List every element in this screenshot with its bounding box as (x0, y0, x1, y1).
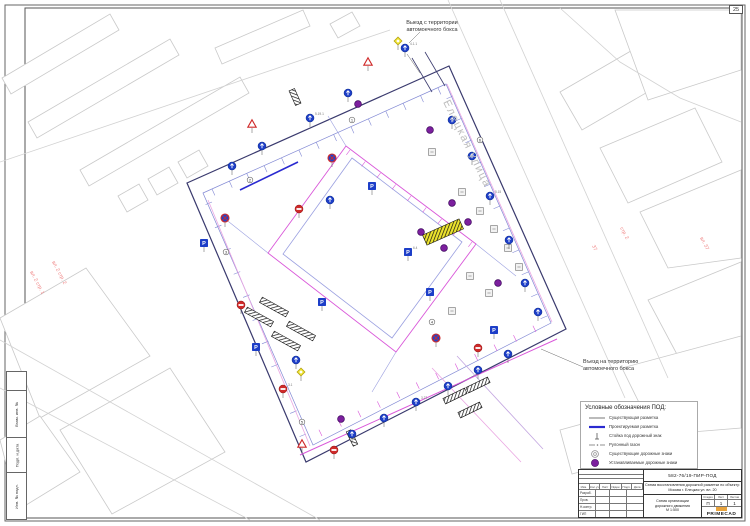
drawing-sheet: 4.1.15.19.12P165.15P6.4PP43.2753.1P3PPЕл… (0, 0, 750, 526)
svg-text:6.4: 6.4 (413, 246, 418, 250)
annotation-line: автомоечного бокса (583, 366, 673, 373)
title-block-role-row: Пров. (579, 497, 643, 504)
blank-cell (596, 497, 610, 503)
sign-cn: 2 (247, 177, 253, 183)
svg-text:P: P (320, 300, 324, 306)
blank-cell (627, 511, 643, 517)
blank-cell (596, 490, 610, 496)
dashdot-icon (585, 441, 609, 449)
legend-title: Условные обозначения ПОД: (585, 405, 693, 411)
role-label: Н.контр. (579, 504, 596, 510)
stamp-empty-cell (6, 371, 27, 392)
title-block-role-row: Н.контр. (579, 504, 643, 511)
stage-sheet-table: СтадияЛистЛистовП11 (702, 495, 741, 507)
doc-code: 582-76/19-ПИР-ПОД (644, 470, 741, 482)
legend-row: Стойка под дорожный знак (585, 431, 693, 440)
blank-cell (596, 504, 610, 510)
stamp-label: Взам. инв. № (14, 402, 19, 427)
legend-row: Существующая разметка (585, 413, 693, 422)
svg-text:P: P (254, 345, 258, 351)
post-icon (585, 432, 609, 440)
legend-label: Проектируемая разметка (609, 424, 658, 429)
circle-gray-icon (585, 450, 609, 458)
svg-text:5.15: 5.15 (495, 190, 501, 194)
blank-cell (610, 490, 627, 496)
title-block-col-header: Подп. (622, 484, 633, 489)
sign-pd (495, 280, 502, 287)
sign-cn: 6 (477, 137, 483, 143)
title-block-left-grid: Изм.Кол.учЛист№док.Подп.Дата Разраб.Пров… (579, 470, 644, 517)
svg-text:3.1: 3.1 (288, 383, 293, 387)
legend-label: Устанавливаемые дорожные знаки (609, 460, 677, 465)
svg-text:P: P (406, 250, 410, 256)
blank-cell (627, 504, 643, 510)
sign-cn: 3 (223, 249, 229, 255)
sign-pd (338, 416, 345, 423)
blank-cell (610, 504, 627, 510)
annotation-line: Выезд с территории (388, 20, 476, 27)
blank-cell (610, 511, 627, 517)
sign-pd (441, 245, 448, 252)
title-block-role-row: ГИП (579, 511, 643, 517)
annotation-entry-right: Въезд на территорию автомоечного бокса (583, 359, 673, 373)
sign-pd (465, 219, 472, 226)
stage-table-cell: П (702, 500, 715, 507)
legend-box: Условные обозначения ПОД: Существующая р… (580, 401, 698, 469)
title-block-empty-rows (579, 470, 643, 484)
title-block-col-header: Изм. (579, 484, 590, 489)
role-label: ГИП (579, 511, 596, 517)
drawing-name-line: М 1:500 (644, 508, 701, 513)
object-name: Схема восстановления дорожной разметки п… (644, 482, 741, 495)
sign-gb (486, 290, 493, 297)
sign-gb (429, 149, 436, 156)
title-block: Изм.Кол.учЛист№док.Подп.Дата Разраб.Пров… (578, 469, 742, 518)
sheet-format-box: 25 (729, 5, 743, 14)
title-block-right: 582-76/19-ПИР-ПОД Схема восстановления д… (644, 470, 741, 517)
svg-text:5.19.1: 5.19.1 (315, 112, 324, 116)
logo-mark-icon (716, 507, 727, 511)
legend-items: Существующая разметкаПроектируемая разме… (585, 413, 693, 467)
legend-label: Существующие дорожные знаки (609, 451, 672, 456)
blank-cell (627, 497, 643, 503)
title-block-col-header: Кол.уч (590, 484, 601, 489)
sign-pd (427, 127, 434, 134)
sign-pd (449, 200, 456, 207)
annotation-exit-top: Выезд с территории автомоечного бокса (388, 20, 476, 34)
svg-text:3.27: 3.27 (421, 396, 427, 400)
sign-gb (449, 308, 456, 315)
stage-and-logo: СтадияЛистЛистовП11 PRIMECAD (702, 495, 741, 517)
sign-gb (459, 189, 466, 196)
svg-text:4.1.1: 4.1.1 (410, 42, 417, 46)
stamp-podp-data: Подп. и дата (6, 437, 27, 474)
legend-row: Рулонный газон (585, 440, 693, 449)
primecad-logo: PRIMECAD (702, 507, 741, 517)
sign-gb (505, 245, 512, 252)
legend-row: Устанавливаемые дорожные знаки (585, 458, 693, 467)
legend-label: Рулонный газон (609, 442, 640, 447)
drawing-name: Схема организации дорожного движения М 1… (644, 495, 702, 517)
logo-text: PRIMECAD (707, 512, 737, 517)
title-block-role-row: Разраб. (579, 490, 643, 497)
blank-cell (596, 511, 610, 517)
line-thick-icon (585, 423, 609, 431)
sign-gb (477, 208, 484, 215)
stamp-inv-podl: Инв. № подл. (6, 472, 27, 520)
sign-pd (355, 101, 362, 108)
legend-row: Проектируемая разметка (585, 422, 693, 431)
svg-text:P: P (202, 241, 206, 247)
svg-text:P: P (370, 184, 374, 190)
object-name-line: Москва г. Елецкая ул. вл. 20 (644, 488, 741, 493)
sign-pd (418, 229, 425, 236)
title-block-col-header: №док. (611, 484, 622, 489)
title-block-col-header: Дата (632, 484, 643, 489)
stage-table-cell: 1 (715, 500, 728, 507)
svg-text:P: P (428, 290, 432, 296)
legend-label: Существующая разметка (609, 415, 658, 420)
sign-cn: 4 (429, 319, 435, 325)
blank-cell (610, 497, 627, 503)
role-label: Пров. (579, 497, 596, 503)
svg-text:P: P (492, 328, 496, 334)
role-label: Разраб. (579, 490, 596, 496)
annotation-line: автомоечного бокса (388, 27, 476, 34)
legend-label: Стойка под дорожный знак (609, 433, 662, 438)
title-block-col-header: Лист (600, 484, 611, 489)
stamp-label: Инв. № подл. (14, 484, 19, 509)
sign-gb (491, 226, 498, 233)
sign-cn: 1 (349, 117, 355, 123)
stamp-vzam-inv: Взам. инв. № (6, 390, 27, 439)
annotation-line: Въезд на территорию (583, 359, 673, 366)
stamp-label: Подп. и дата (14, 444, 19, 468)
blank-cell (627, 490, 643, 496)
sign-gb (516, 264, 523, 271)
title-block-bottom: Схема организации дорожного движения М 1… (644, 495, 741, 517)
stage-table-cell: 1 (728, 500, 741, 507)
line-thin-icon (585, 414, 609, 422)
circle-purple-icon (585, 459, 609, 467)
title-block-role-rows: Разраб.Пров.Н.контр.ГИП (579, 490, 643, 517)
legend-row: Существующие дорожные знаки (585, 449, 693, 458)
sign-cn: 5 (299, 419, 305, 425)
sign-gb (467, 273, 474, 280)
